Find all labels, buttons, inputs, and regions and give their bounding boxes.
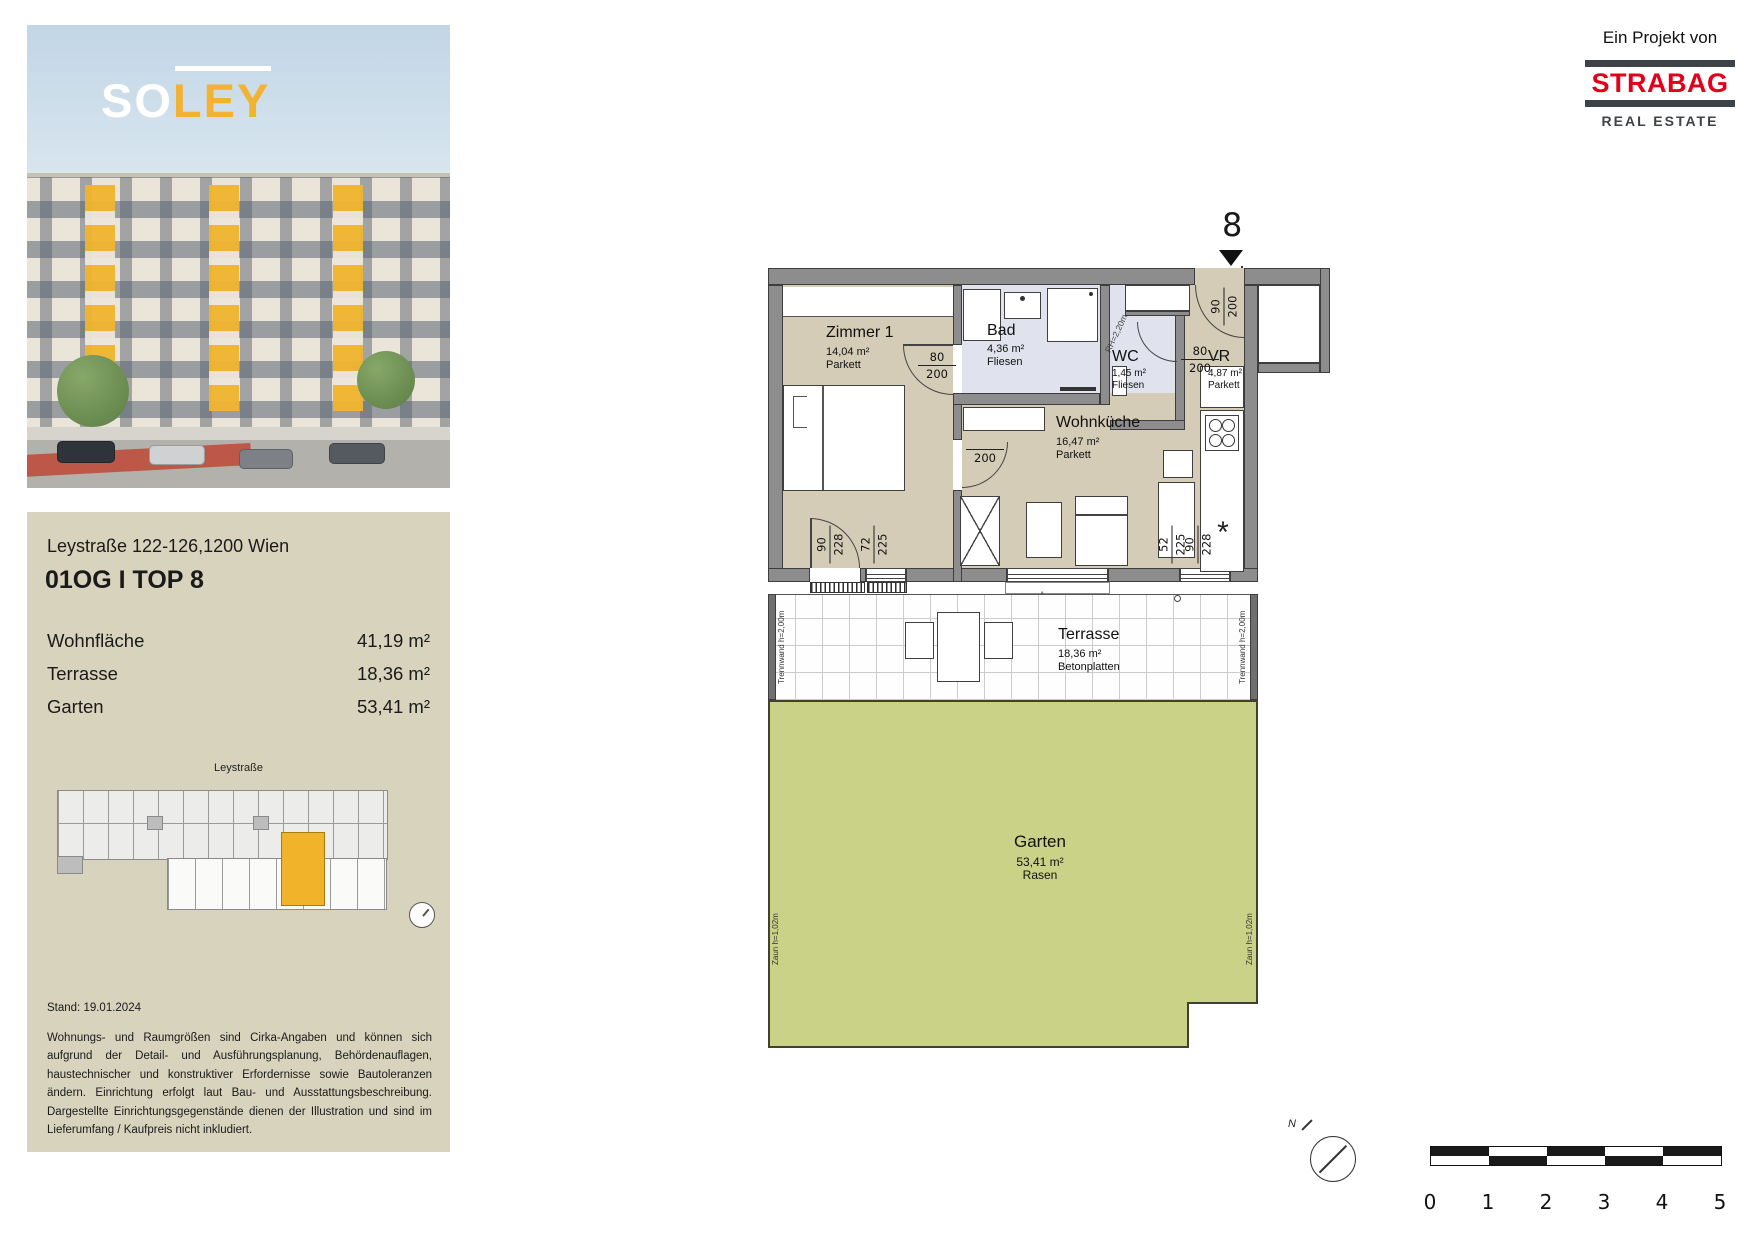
zimmer1-window: [866, 568, 906, 582]
faucet-icon: [1020, 296, 1025, 301]
strabag-subtitle: REAL ESTATE: [1585, 113, 1735, 129]
stand-date: Stand: 19.01.2024: [47, 1002, 141, 1014]
room-label-wc: WC 1,45 m² Fliesen: [1112, 348, 1146, 391]
entrance-marker-icon: [1219, 250, 1243, 266]
wall-bad-bottom: [953, 393, 1100, 405]
wall-bottom: [768, 568, 810, 582]
unit-number: 8: [1222, 206, 1242, 244]
wall-left: [768, 285, 783, 582]
room-label-zimmer1: Zimmer 1 14,04 m² Parkett: [826, 324, 894, 372]
wall-right: [1244, 285, 1258, 582]
unit-title: 01OG I TOP 8: [45, 566, 204, 595]
wall-zimmer1: [953, 285, 962, 345]
dim-kitchen-door: 90228: [1176, 522, 1220, 566]
terrace-chair: [905, 622, 934, 659]
soley-logo-bar: [175, 66, 271, 71]
drain-icon: [1174, 595, 1181, 602]
scale-label: 0: [1424, 1190, 1437, 1214]
scale-bar-checker: [1430, 1146, 1722, 1166]
siteplan-building: [57, 790, 388, 860]
dim-entry-door: 90200: [1202, 284, 1246, 328]
sideboard: [963, 407, 1045, 431]
room-label-bad: Bad 4,36 m² Fliesen: [987, 322, 1024, 369]
terrace-chair: [984, 622, 1013, 659]
zaun-label-right: Zaun h=1,02m: [1245, 884, 1254, 994]
siteplan-street-label: Leystraße: [27, 762, 450, 774]
dim-wc-door: 80200: [1181, 344, 1219, 375]
wall-neighbor: [1320, 268, 1330, 373]
zimmer1-door-leaf: [903, 344, 953, 346]
scale-bar: 0 1 2 3 4 5: [1430, 1146, 1720, 1242]
soley-logo: SOLEY: [101, 73, 270, 128]
shower-drain-icon: [1089, 292, 1093, 296]
siteplan-stair-core: [253, 816, 269, 830]
sofa-back-line: [1076, 514, 1127, 516]
trennwand-label-right: Trennwand h=2,00m: [1238, 596, 1247, 698]
window-sill: [867, 582, 907, 593]
north-letter: N: [1288, 1118, 1296, 1130]
strabag-bar-bottom: [1585, 100, 1735, 107]
bed-headboard-line: [822, 386, 824, 490]
door-sill: [810, 582, 865, 593]
siteplan-terrace-row: [167, 858, 387, 910]
metric-row: Wohnfläche 41,19 m²: [47, 630, 430, 652]
sidewalk: [27, 427, 450, 440]
north-tick: [1301, 1119, 1312, 1130]
zaun-label-left: Zaun h=1,02m: [771, 884, 780, 994]
bed-bracket: [793, 396, 807, 428]
stove: [1205, 415, 1239, 451]
tree: [357, 351, 415, 409]
scale-label: 4: [1656, 1190, 1669, 1214]
dim-zimmer1-door: 80200: [918, 350, 956, 381]
compass-icon: [409, 902, 435, 928]
metric-label: Garten: [47, 696, 104, 717]
metric-row: Garten 53,41 m²: [47, 696, 430, 718]
entrance-threshold: [1195, 268, 1244, 285]
strabag-wordmark: STRABAG: [1585, 67, 1735, 100]
car: [239, 449, 293, 469]
metric-label: Wohnfläche: [47, 630, 144, 651]
car: [329, 443, 385, 464]
scale-label: 1: [1482, 1190, 1495, 1214]
scale-label: 5: [1714, 1190, 1727, 1214]
partition-wall-left: [768, 594, 776, 700]
shower: [1047, 288, 1098, 342]
metric-value: 18,36 m²: [357, 663, 430, 685]
towel-radiator: [1060, 387, 1096, 391]
wc-shaft-niche: [1125, 285, 1190, 311]
stairwell-niche: [1258, 285, 1320, 363]
car: [57, 441, 115, 463]
metric-value: 41,19 m²: [357, 630, 430, 652]
room-label-garten: Garten 53,41 m² Rasen: [960, 832, 1120, 883]
siteplan-unit-highlight: [281, 832, 325, 906]
wardrobe: [960, 496, 1000, 566]
address: Leystraße 122-126,1200 Wien: [47, 536, 289, 557]
scale-label: 3: [1598, 1190, 1611, 1214]
metric-value: 53,41 m²: [357, 696, 430, 718]
sofa: [1075, 496, 1128, 566]
terrace-table: [937, 612, 980, 682]
wall-niche-bottom: [1258, 363, 1320, 373]
zimmer1-wardrobe: [783, 287, 953, 317]
compass-needle-icon: [1316, 1142, 1350, 1176]
project-label: Ein Projekt von: [1585, 28, 1735, 48]
siteplan-stair-core: [147, 816, 163, 830]
wall-bottom: [1108, 568, 1180, 582]
wall-shaft-bottom: [1125, 311, 1190, 316]
trennwand-label-left: Trennwand h=2,00m: [777, 596, 786, 698]
strabag-bar-top: [1585, 60, 1735, 67]
dim-wohnkueche-door: 200: [966, 448, 1004, 465]
wall-top-left: [768, 268, 1195, 285]
scale-label: 2: [1540, 1190, 1553, 1214]
north-arrow: N: [1288, 1118, 1368, 1198]
soley-logo-part1: SO: [101, 74, 173, 127]
room-label-terrasse: Terrasse 18,36 m² Betonplatten: [1058, 626, 1120, 674]
metric-label: Terrasse: [47, 663, 118, 684]
dim-terrace-door: 90228: [808, 522, 852, 566]
soley-logo-part2: LEY: [173, 74, 270, 127]
strabag-logo-block: Ein Projekt von STRABAG REAL ESTATE: [1585, 28, 1735, 129]
sliding-door: [1007, 568, 1108, 582]
balcony-strip: [209, 185, 239, 411]
wall-top-right: [1244, 268, 1330, 285]
tree: [57, 355, 129, 427]
armchair: [1026, 502, 1062, 558]
room-label-wohnkueche: Wohnküche 16,47 m² Parkett: [1056, 414, 1140, 462]
car: [149, 445, 205, 465]
garden-notch: [1187, 1002, 1258, 1048]
metric-row: Terrasse 18,36 m²: [47, 663, 430, 685]
partition-wall-right: [1250, 594, 1258, 700]
floor-plan: 8: [760, 196, 1335, 1066]
info-panel: Leystraße 122-126,1200 Wien 01OG I TOP 8…: [27, 512, 450, 1152]
disclaimer-text: Wohnungs- und Raumgrößen sind Cirka-Anga…: [47, 1029, 432, 1139]
siteplan-stub: [57, 856, 83, 874]
building-rendering: SOLEY: [27, 25, 450, 488]
terrace-area: [768, 594, 1258, 700]
dim-zimmer1-window: 72225: [852, 522, 896, 566]
stool: [1163, 450, 1193, 478]
